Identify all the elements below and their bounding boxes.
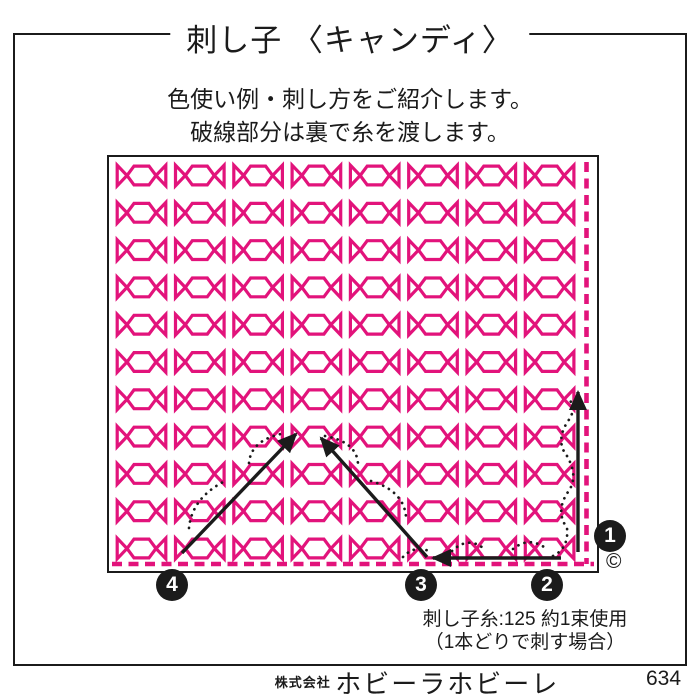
candy-motif [467,389,516,410]
step-1-marker: 1 [594,520,626,552]
candy-motif [525,389,574,410]
candy-motif [525,203,574,224]
stitch-pattern-diagram [109,157,597,571]
candy-motif [117,538,166,559]
candy-motif [176,314,225,335]
candy-motif [409,389,458,410]
step-3-marker: 3 [405,569,437,601]
candy-motif [234,352,283,373]
candy-motif [467,240,516,261]
candy-motif [350,501,399,522]
candy-motif [117,426,166,447]
candy-motif [292,240,341,261]
intro-line-1: 色使い例・刺し方をご紹介します。 [0,83,700,116]
company-logo: 株式会社 ホビーラホビーレ [275,664,559,700]
candy-motif [176,426,225,447]
candy-motif [350,314,399,335]
candy-motif [467,538,516,559]
candy-motif [234,426,283,447]
candy-motif [292,277,341,298]
step-4-marker: 4 [156,569,188,601]
candy-motif [117,389,166,410]
candy-motif [234,389,283,410]
company-name: ホビーラホビーレ [335,669,559,699]
candy-motif [176,277,225,298]
candy-motif [409,426,458,447]
candy-motif [234,165,283,186]
candy-motif [525,426,574,447]
candy-motif [409,277,458,298]
step-2-marker: 2 [531,569,563,601]
candy-motif [292,501,341,522]
candy-motif [234,501,283,522]
candy-motif [234,240,283,261]
candy-motif [409,501,458,522]
candy-motif [409,464,458,485]
candy-motif [409,240,458,261]
candy-motif [234,277,283,298]
intro-line-2: 破線部分は裏で糸を渡します。 [0,116,700,149]
candy-motif [234,538,283,559]
candy-motif-grid [117,165,574,559]
candy-motif [117,501,166,522]
candy-motif [292,389,341,410]
candy-motif [467,352,516,373]
candy-motif [350,426,399,447]
candy-motif [467,277,516,298]
pattern-area [107,155,599,573]
candy-motif [292,352,341,373]
candy-motif [467,314,516,335]
candy-motif [292,165,341,186]
thread-usage-note: 刺し子糸:125 約1束使用 （1本どりで刺す場合） [394,608,656,654]
candy-motif [176,352,225,373]
candy-motif [350,538,399,559]
candy-motif [176,389,225,410]
candy-motif [409,314,458,335]
candy-motif [176,464,225,485]
candy-motif [467,165,516,186]
candy-motif [292,426,341,447]
candy-motif [409,538,458,559]
candy-motif [117,314,166,335]
candy-motif [176,203,225,224]
company-prefix: 株式会社 [275,675,331,690]
candy-motif [117,277,166,298]
candy-motif [176,165,225,186]
candy-motif [525,501,574,522]
candy-motif [117,203,166,224]
candy-motif [467,501,516,522]
candy-motif [176,501,225,522]
candy-motif [525,538,574,559]
candy-motif [409,165,458,186]
candy-motif [234,464,283,485]
candy-motif [350,165,399,186]
candy-motif [525,240,574,261]
intro-text: 色使い例・刺し方をご紹介します。 破線部分は裏で糸を渡します。 [0,83,700,149]
candy-motif [292,314,341,335]
candy-motif [234,314,283,335]
candy-motif [176,538,225,559]
candy-motif [350,464,399,485]
candy-motif [350,240,399,261]
candy-motif [409,203,458,224]
candy-motif [525,277,574,298]
candy-motif [292,538,341,559]
candy-motif [525,314,574,335]
candy-motif [467,426,516,447]
candy-motif [525,352,574,373]
candy-motif [292,203,341,224]
candy-motif [467,464,516,485]
thread-note-line-2: （1本どりで刺す場合） [394,631,656,654]
sashiko-instruction-sheet: 刺し子 〈キャンディ〉 色使い例・刺し方をご紹介します。 破線部分は裏で糸を渡し… [0,0,700,700]
candy-motif [350,389,399,410]
candy-motif [525,165,574,186]
candy-motif [350,277,399,298]
candy-motif [117,352,166,373]
candy-motif [350,352,399,373]
candy-motif [350,203,399,224]
candy-motif [525,464,574,485]
candy-motif [117,165,166,186]
candy-motif [467,203,516,224]
candy-motif [409,352,458,373]
copyright-mark: © [606,550,621,574]
page-title: 刺し子 〈キャンディ〉 [170,15,529,60]
candy-motif [117,464,166,485]
candy-motif [292,464,341,485]
candy-motif [234,203,283,224]
candy-motif [176,240,225,261]
sheet-number: 634 [646,667,681,691]
thread-note-line-1: 刺し子糸:125 約1束使用 [394,608,656,631]
candy-motif [117,240,166,261]
